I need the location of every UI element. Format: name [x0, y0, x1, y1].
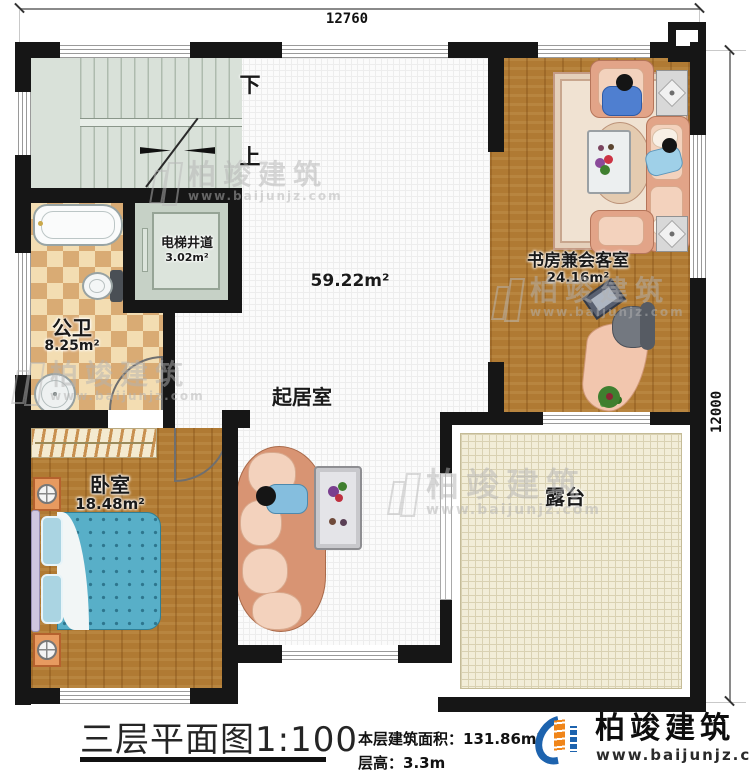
plan-title: 三层平面图1:100 [80, 712, 358, 761]
toilet-bowl [89, 279, 105, 293]
plan-title-text: 三层平面图 [80, 720, 255, 760]
stair-handrail [80, 118, 242, 127]
wall [15, 688, 60, 704]
headboard [31, 510, 40, 632]
plan-scale: 1:100 [255, 720, 358, 760]
study-coffee-table [587, 130, 631, 194]
bedroom-door-leaf [174, 428, 176, 482]
window [538, 42, 650, 58]
wall [15, 42, 31, 92]
clothes-rack [31, 428, 157, 458]
logo-building-orange [551, 715, 568, 755]
right-dimension-value: 12000 [709, 375, 733, 449]
chair-back [640, 302, 655, 350]
side-table [656, 70, 688, 116]
stair-up-label: 上 [236, 146, 264, 169]
window [15, 92, 31, 155]
extension-line [706, 702, 746, 703]
flower-icon [600, 165, 610, 175]
wall [15, 410, 108, 428]
wall [15, 155, 31, 253]
floor-area-value: 131.86m² [463, 730, 543, 748]
bathroom-area: 8.25m² [40, 339, 104, 354]
rack-rail [35, 442, 153, 444]
study-area: 24.16m² [508, 271, 648, 286]
armchair-cushion [598, 216, 644, 246]
bed [31, 510, 161, 632]
study-label: 书房兼会客室 [508, 252, 648, 271]
floor-area-label: 本层建筑面积： [358, 730, 463, 748]
flower-icon [604, 155, 613, 164]
faucet-icon [38, 221, 43, 226]
window [690, 135, 706, 278]
bathtub-inner [41, 211, 115, 239]
brand-website: www.baijunjz.com [596, 746, 750, 764]
wall [488, 362, 504, 412]
flower-icon [335, 494, 343, 502]
logo-building-blue [567, 722, 580, 756]
bathroom-label: 公卫 [40, 317, 104, 339]
wall [440, 412, 452, 473]
wall [398, 645, 452, 663]
wall [190, 42, 282, 58]
extension-line [706, 50, 746, 51]
person-head [256, 486, 276, 506]
nightstand [33, 477, 61, 511]
wall [237, 645, 282, 663]
window [60, 688, 190, 704]
toilet [82, 272, 113, 300]
wall [163, 410, 175, 428]
wall [690, 278, 706, 712]
wall [190, 688, 238, 704]
decor-dot [329, 518, 336, 525]
decor-dot [608, 144, 614, 150]
side-table [656, 216, 688, 252]
drain-icon [53, 392, 57, 396]
brand-logo-icon [537, 710, 589, 770]
sofa-cushion [242, 548, 288, 594]
wall [228, 188, 242, 313]
person-head [662, 138, 677, 153]
living-coffee-table [314, 466, 362, 550]
wall [123, 203, 135, 313]
floorplan-page: { "dimensions": { "width_top": "12760", … [0, 0, 750, 776]
wall [123, 300, 242, 313]
pillow [41, 574, 63, 624]
wall [650, 412, 706, 425]
window [282, 42, 448, 58]
decor-dot [598, 145, 604, 151]
decor-dot [340, 519, 347, 526]
floor-area-line: 本层建筑面积：131.86m² [358, 728, 543, 749]
living-room-label: 起居室 [252, 386, 352, 408]
person-head [616, 74, 633, 91]
bedroom-label: 卧室 [80, 474, 140, 496]
pillow [41, 516, 63, 566]
top-dimension-value: 12760 [317, 11, 377, 27]
flower-icon [338, 482, 347, 491]
bathtub [33, 204, 123, 246]
window [15, 253, 31, 375]
monitor-screen [591, 287, 617, 311]
terrace-floor [460, 433, 682, 689]
window [60, 42, 190, 58]
terrace-sliding-door [440, 473, 452, 600]
nightstand [33, 633, 61, 667]
wall [15, 188, 242, 203]
sofa-cushion [252, 592, 302, 630]
window [543, 412, 650, 425]
wall [488, 58, 504, 152]
wall [222, 410, 238, 704]
elevator-room-area: 3.02m² [137, 252, 237, 264]
brand-name: 柏竣建筑 [595, 714, 735, 744]
top-dimension-line [20, 8, 700, 10]
wall [440, 600, 452, 647]
lamp-icon [37, 484, 57, 504]
wall [163, 313, 175, 410]
sink [34, 373, 76, 415]
elevator-room-label: 电梯井道 [137, 237, 237, 251]
wall [448, 42, 538, 58]
floor-height-value: 3.3m [403, 754, 445, 772]
title-underline [80, 757, 326, 762]
lamp-icon [37, 640, 57, 660]
terrace-label: 露台 [535, 486, 595, 508]
wall [440, 412, 543, 425]
living-room-area: 59.22m² [300, 272, 400, 291]
floor-height-label: 层高： [358, 754, 403, 772]
extension-line [19, 10, 20, 42]
stair-down-label: 下 [236, 74, 264, 97]
wall [690, 42, 706, 135]
window [282, 648, 398, 662]
floor-height-line: 层高：3.3m [358, 752, 445, 773]
plant-flower-icon [606, 393, 613, 400]
